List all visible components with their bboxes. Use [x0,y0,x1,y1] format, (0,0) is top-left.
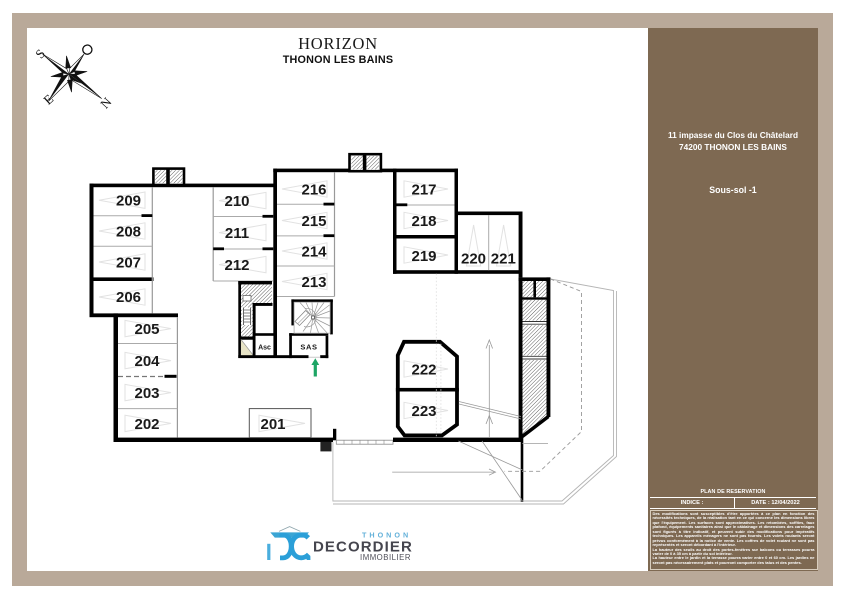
svg-text:219: 219 [411,248,436,265]
svg-text:207: 207 [116,254,141,271]
svg-text:Asc: Asc [258,344,271,351]
svg-text:214: 214 [301,243,327,260]
svg-text:205: 205 [134,321,159,338]
svg-text:215: 215 [301,213,326,230]
svg-text:204: 204 [134,353,160,370]
svg-text:220: 220 [461,251,486,268]
svg-text:201: 201 [260,416,285,433]
svg-text:S: S [32,46,48,61]
svg-text:N: N [97,94,115,111]
svg-text:221: 221 [491,251,516,268]
svg-text:213: 213 [301,274,326,291]
svg-text:SAS: SAS [300,342,317,351]
svg-text:208: 208 [116,223,141,240]
svg-text:203: 203 [134,385,159,402]
svg-text:IMMOBILIER: IMMOBILIER [360,553,411,562]
svg-text:210: 210 [224,193,249,210]
svg-text:218: 218 [411,213,436,230]
svg-text:206: 206 [116,289,141,306]
svg-text:209: 209 [116,193,141,210]
svg-text:222: 222 [411,361,436,378]
svg-text:223: 223 [411,403,436,420]
svg-text:217: 217 [411,181,436,198]
svg-text:216: 216 [301,181,326,198]
svg-text:212: 212 [224,257,249,274]
svg-text:211: 211 [225,225,249,242]
svg-text:202: 202 [134,416,159,433]
